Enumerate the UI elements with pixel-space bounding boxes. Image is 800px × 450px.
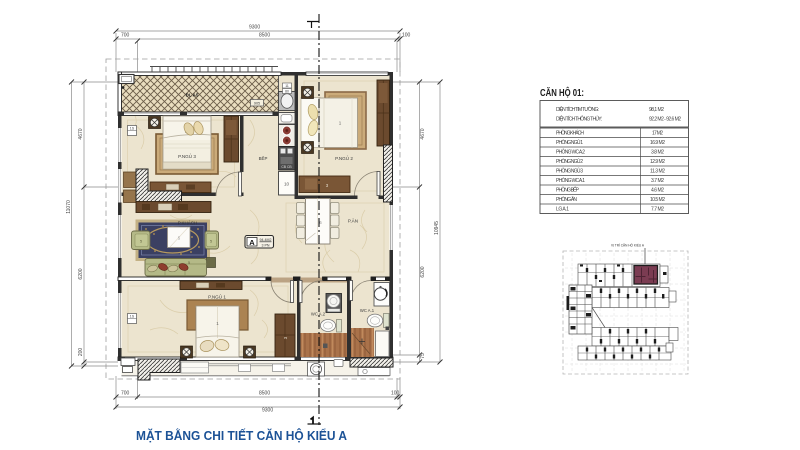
svg-text:9300: 9300 [262,408,273,414]
svg-text:17 M2: 17 M2 [652,131,663,137]
svg-text:4670: 4670 [420,128,426,139]
svg-text:98,1 M2: 98,1 M2 [649,107,664,113]
svg-text:PHÒNG NGỦ 1: PHÒNG NGỦ 1 [556,139,583,146]
svg-text:PHÒNG NGỦ 3: PHÒNG NGỦ 3 [556,168,583,175]
svg-text:PHÒNG KHÁCH: PHÒNG KHÁCH [556,130,584,137]
svg-text:11: 11 [285,84,289,88]
svg-text:4670: 4670 [78,128,84,139]
svg-text:6200: 6200 [78,268,84,279]
svg-text:PHÒNG WC A.2: PHÒNG WC A.2 [556,149,585,156]
svg-text:7.7 M2: 7.7 M2 [651,207,664,213]
svg-text:3 PN: 3 PN [262,244,270,248]
svg-text:12.9 M2: 12.9 M2 [650,159,665,165]
svg-text:PHÒNG NGỦ 2: PHÒNG NGỦ 2 [556,158,583,165]
svg-text:100: 100 [402,33,411,39]
svg-text:10945: 10945 [434,221,440,235]
svg-text:100: 100 [391,391,400,397]
svg-text:P.NGỦ 1: P.NGỦ 1 [208,294,226,300]
svg-text:16.9 M2: 16.9 M2 [650,140,665,146]
svg-text:DIỆN TÍCH THÔNG THỦY:: DIỆN TÍCH THÔNG THỦY: [556,115,602,123]
svg-text:8500: 8500 [259,391,270,397]
svg-text:200: 200 [78,348,84,357]
svg-text:P.NGỦ 2: P.NGỦ 2 [335,155,353,161]
svg-text:CB CB: CB CB [281,165,292,169]
svg-text:PHÒNG BẾP: PHÒNG BẾP [556,187,580,194]
svg-text:DIỆN TÍCH TIM TƯỜNG:: DIỆN TÍCH TIM TƯỜNG: [556,105,599,113]
svg-text:75: 75 [420,353,426,359]
svg-text:5: 5 [140,240,142,244]
svg-text:CĂN HỘ 01:: CĂN HỘ 01: [540,86,584,99]
svg-text:92.2 M2 - 92.6 M2: 92.2 M2 - 92.6 M2 [649,117,681,123]
svg-text:10: 10 [284,182,290,187]
svg-text:94.4M2: 94.4M2 [260,238,272,242]
svg-text:5: 5 [210,240,212,244]
svg-text:BẾP: BẾP [259,156,268,161]
svg-text:PHÒNG ĂN: PHÒNG ĂN [556,196,577,203]
svg-text:P.KHÁCH: P.KHÁCH [178,220,197,226]
svg-text:6200: 6200 [420,266,426,277]
svg-text:VỊ TRÍ CĂN HỘ KIỂU A: VỊ TRÍ CĂN HỘ KIỂU A [611,243,644,248]
svg-text:A: A [249,238,255,247]
svg-text:PHÒNG WC A.1: PHÒNG WC A.1 [556,177,585,184]
svg-text:10.5 M2: 10.5 M2 [650,197,665,203]
svg-text:11070: 11070 [66,200,72,214]
svg-text:700: 700 [121,391,130,397]
svg-text:P.NGỦ 3: P.NGỦ 3 [178,153,196,159]
svg-text:ĐL A5: ĐL A5 [186,93,199,98]
svg-text:905: 905 [254,102,260,106]
svg-text:5: 5 [188,261,190,265]
svg-text:1S: 1S [130,315,135,319]
svg-text:9300: 9300 [249,25,260,31]
svg-text:LG A.1: LG A.1 [556,207,569,213]
svg-text:MẶT BẰNG CHI TIẾT CĂN HỘ KIỂU: MẶT BẰNG CHI TIẾT CĂN HỘ KIỂU A [136,428,348,443]
svg-text:700: 700 [121,33,130,39]
svg-text:1S: 1S [130,127,135,131]
svg-text:WC A.2: WC A.2 [311,312,326,317]
svg-text:4.6 M2: 4.6 M2 [651,188,664,194]
svg-text:WC A.1: WC A.1 [360,308,375,313]
svg-text:3.8 M2: 3.8 M2 [651,150,664,156]
svg-text:11.3 M2: 11.3 M2 [650,169,665,175]
svg-text:80: 80 [285,90,289,94]
svg-text:3.7 M2: 3.7 M2 [651,178,664,184]
svg-text:8500: 8500 [259,33,270,39]
svg-text:P.ĂN: P.ĂN [348,218,358,224]
